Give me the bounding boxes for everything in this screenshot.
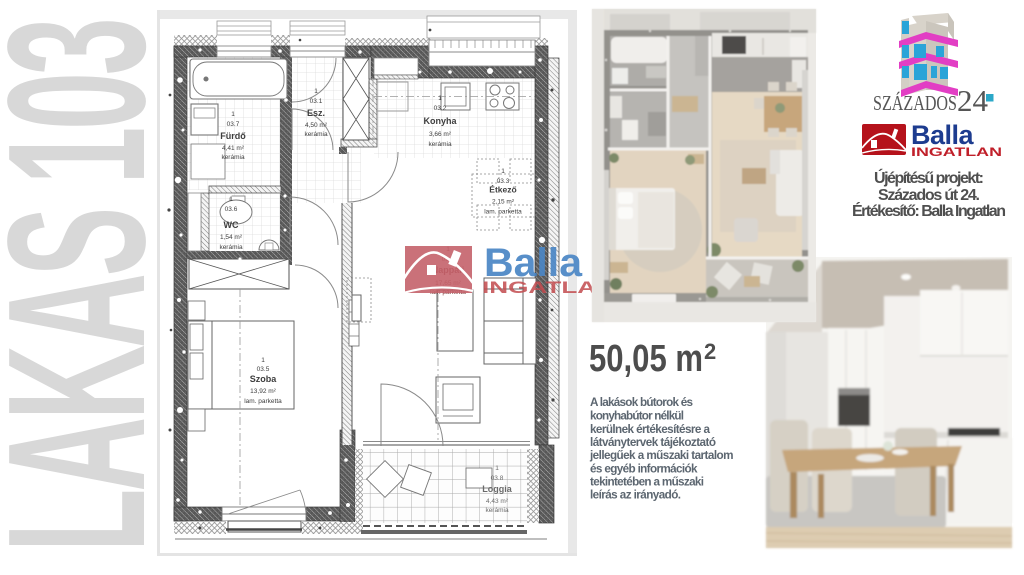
svg-text:Újépítésű projekt:: Újépítésű projekt:: [874, 168, 984, 187]
svg-text:1: 1: [495, 465, 499, 472]
svg-text:Étkező: Étkező: [489, 185, 516, 195]
svg-text:3,66 m²: 3,66 m²: [429, 131, 452, 138]
svg-text:kerámia: kerámia: [221, 154, 245, 161]
svg-text:látványtervek tájékoztató: látványtervek tájékoztató: [590, 436, 716, 449]
svg-text:13,92 m²: 13,92 m²: [250, 388, 276, 395]
svg-text:1: 1: [438, 95, 442, 102]
svg-text:WC: WC: [224, 220, 239, 230]
svg-text:tekintetében a műszaki: tekintetében a műszaki: [590, 475, 704, 488]
svg-text:kerámia: kerámia: [428, 141, 452, 148]
svg-text:SZÁZADOS: SZÁZADOS: [873, 91, 957, 115]
svg-text:03.8: 03.8: [491, 475, 504, 482]
svg-text:2,15 m²: 2,15 m²: [492, 199, 515, 206]
svg-text:03.6: 03.6: [225, 206, 238, 213]
svg-text:lam. parketta: lam. parketta: [484, 209, 522, 216]
svg-text:03.2: 03.2: [434, 105, 447, 112]
svg-text:INGATLAN: INGATLAN: [911, 147, 1002, 159]
svg-text:2: 2: [704, 339, 716, 364]
svg-text:1: 1: [231, 111, 235, 118]
svg-text:A lakások bútorok és: A lakások bútorok és: [590, 396, 693, 409]
svg-text:Százados út 24.: Százados út 24.: [878, 187, 980, 204]
svg-text:jellegűek a műszaki tartalom: jellegűek a műszaki tartalom: [589, 449, 734, 462]
svg-text:leírás az irányadó.: leírás az irányadó.: [590, 489, 681, 502]
svg-text:Konyha: Konyha: [423, 116, 457, 126]
svg-text:konyhabútor nélkül: konyhabútor nélkül: [590, 410, 684, 423]
svg-text:Fürdő: Fürdő: [220, 131, 246, 141]
svg-text:Szoba: Szoba: [250, 374, 277, 384]
svg-text:03.5: 03.5: [257, 366, 270, 373]
svg-text:1: 1: [229, 196, 233, 203]
svg-text:Esz.: Esz.: [307, 108, 325, 118]
svg-text:lam. parketta: lam. parketta: [244, 398, 282, 405]
svg-text:1: 1: [501, 168, 505, 175]
svg-text:kerámia: kerámia: [219, 244, 243, 251]
svg-text:Értékesítő: Balla Ingatlan: Értékesítő: Balla Ingatlan: [852, 201, 1006, 220]
svg-text:4,41 m²: 4,41 m²: [222, 145, 245, 152]
svg-text:03.7: 03.7: [227, 121, 240, 128]
svg-text:kerámia: kerámia: [485, 507, 509, 514]
svg-text:és egyéb információk: és egyéb információk: [590, 462, 698, 475]
svg-text:4,43 m²: 4,43 m²: [486, 498, 509, 505]
svg-text:kerámia: kerámia: [304, 131, 328, 138]
svg-text:03.1: 03.1: [310, 98, 323, 105]
svg-text:1: 1: [314, 88, 318, 95]
svg-text:1: 1: [261, 357, 265, 364]
svg-text:Balla: Balla: [911, 120, 975, 150]
svg-text:1,54 m²: 1,54 m²: [220, 234, 243, 241]
svg-text:50,05 m: 50,05 m: [589, 338, 703, 380]
svg-text:4,50 m²: 4,50 m²: [305, 122, 328, 129]
svg-text:Loggia: Loggia: [482, 484, 512, 494]
svg-text:kerülnek értékesítésre a: kerülnek értékesítésre a: [590, 423, 710, 436]
svg-text:24: 24: [957, 83, 989, 118]
